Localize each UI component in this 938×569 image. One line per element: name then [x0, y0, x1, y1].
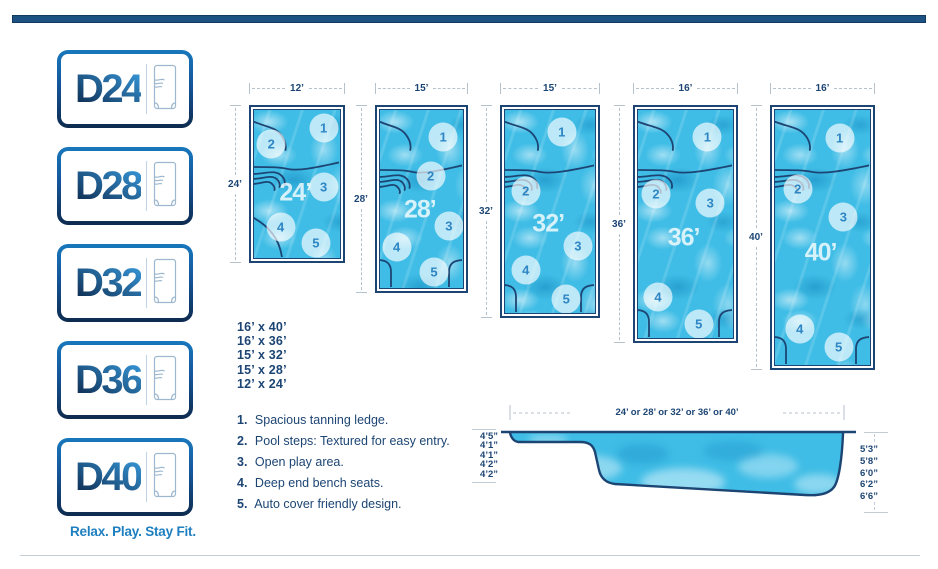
dim-tick [614, 105, 625, 106]
feature-text: Spacious tanning ledge. [251, 413, 388, 427]
dim-line [697, 88, 735, 89]
dim-tick [230, 105, 241, 106]
width-dimension: 12’ [249, 81, 345, 95]
dim-tick [633, 83, 634, 94]
feature-number: 5. [237, 497, 247, 511]
badge-divider [146, 161, 147, 211]
feature-item: 3. Open play area. [237, 452, 450, 473]
mini-pool-icon [153, 452, 177, 498]
dim-line [309, 88, 342, 89]
size-item: 12’ x 24’ [237, 377, 287, 391]
length-dimension: 24’ [220, 105, 250, 263]
pool-water-area: 32’12345 [504, 109, 596, 314]
badge-divider [146, 64, 147, 114]
size-item: 16’ x 40’ [237, 320, 287, 334]
pool-size-label: 40’ [805, 238, 837, 267]
length-dimension: 36’ [604, 105, 634, 343]
deep-depth-value: 5’8” [860, 456, 896, 468]
dim-line [235, 108, 236, 175]
dim-tick [481, 105, 492, 106]
model-badge-inner: D32 [61, 248, 189, 318]
feature-item: 1. Spacious tanning ledge. [237, 410, 450, 431]
shallow-depth-labels: 4’5”4’1”4’1”4’2”4’2” [468, 432, 498, 479]
feature-marker-3: 3 [696, 189, 725, 218]
size-item: 15’ x 28’ [237, 363, 287, 377]
pool-diagram-d32: 32’12345 [500, 105, 600, 318]
length-dimension-label: 32’ [479, 204, 493, 219]
pool-size-label: 28’ [404, 195, 436, 224]
model-label: D28 [75, 166, 141, 206]
dim-line [834, 88, 872, 89]
dim-tick [737, 83, 738, 94]
dim-line [756, 108, 757, 228]
pool-size-label: 24’ [279, 178, 311, 207]
feature-marker-1: 1 [309, 113, 338, 142]
pool-water-area: 40’12345 [774, 109, 871, 366]
sizes-list: 16’ x 40’16’ x 36’15’ x 32’15’ x 28’12’ … [237, 320, 287, 391]
footer-divider [20, 555, 920, 556]
model-badge-d32[interactable]: D32 [57, 244, 193, 322]
badge-divider [146, 355, 147, 405]
pool-water-area: 24’12345 [253, 109, 341, 259]
dim-tick [356, 292, 367, 293]
feature-text: Open play area. [251, 455, 343, 469]
mini-pool-icon [153, 161, 177, 207]
width-dimension: 15’ [375, 81, 468, 95]
pool-icon [153, 258, 177, 309]
dim-line [378, 88, 410, 89]
tagline: Relax. Play. Stay Fit. [70, 524, 196, 539]
width-dimension: 16’ [633, 81, 738, 95]
dim-tick [467, 83, 468, 94]
dim-tick [874, 83, 875, 94]
feature-marker-3: 3 [309, 172, 338, 201]
top-accent-bar [12, 15, 926, 23]
width-dimension-label: 12’ [287, 83, 307, 94]
feature-marker-4: 4 [382, 233, 411, 262]
depth-tick [864, 432, 888, 433]
depth-tick [864, 512, 888, 513]
dim-tick [751, 105, 762, 106]
model-badge-inner: D24 [61, 54, 189, 124]
pool-water-area: 36’12345 [637, 109, 734, 339]
dim-line [252, 88, 285, 89]
pool-diagram-d36: 36’12345 [633, 105, 738, 343]
feature-item: 4. Deep end bench seats. [237, 473, 450, 494]
deep-depth-value: 6’2” [860, 479, 896, 491]
dim-tick [599, 83, 600, 94]
feature-text: Auto cover friendly design. [251, 497, 401, 511]
model-badge-inner: D36 [61, 345, 189, 415]
dim-tick [751, 369, 762, 370]
model-label: D36 [75, 360, 141, 400]
dim-line [756, 247, 757, 367]
width-dimension: 15’ [500, 81, 600, 95]
dim-line [636, 88, 674, 89]
model-badge-d24[interactable]: D24 [57, 50, 193, 128]
dim-line [433, 88, 465, 89]
badge-divider [146, 258, 147, 308]
model-label: D32 [75, 263, 141, 303]
pool-size-label: 32’ [532, 209, 564, 238]
feature-marker-3: 3 [563, 232, 592, 261]
dim-tick [344, 83, 345, 94]
model-badge-inner: D40 [61, 442, 189, 512]
feature-marker-2: 2 [257, 130, 286, 159]
length-dimension: 28’ [346, 105, 376, 293]
pool-diagram-d40: 40’12345 [770, 105, 875, 370]
width-dimension: 16’ [770, 81, 875, 95]
pool-icon [153, 161, 177, 212]
feature-text: Deep end bench seats. [251, 476, 383, 490]
model-badge-d28[interactable]: D28 [57, 147, 193, 225]
dim-tick [614, 342, 625, 343]
feature-list: 1. Spacious tanning ledge.2. Pool steps:… [237, 410, 450, 515]
width-dimension-label: 15’ [412, 83, 432, 94]
feature-number: 2. [237, 434, 247, 448]
deep-depth-value: 6’0” [860, 468, 896, 480]
feature-marker-5: 5 [684, 310, 713, 339]
length-dimension: 32’ [471, 105, 501, 318]
depth-tick [472, 429, 496, 430]
profile-length-label: 24’ or 28’ or 32’ or 36’ or 40’ [572, 407, 782, 418]
feature-marker-5: 5 [552, 284, 581, 313]
length-dimension-label: 40’ [749, 230, 763, 245]
feature-marker-4: 4 [785, 315, 814, 344]
dim-line [619, 234, 620, 341]
pool-icon [153, 64, 177, 115]
pool-diagram-d28: 28’12345 [375, 105, 468, 293]
dim-tick [356, 105, 367, 106]
dim-line [486, 221, 487, 315]
feature-marker-1: 1 [825, 124, 854, 153]
feature-marker-5: 5 [824, 333, 853, 362]
feature-marker-4: 4 [511, 256, 540, 285]
width-dimension-label: 16’ [676, 83, 696, 94]
dim-line [486, 108, 487, 202]
model-badge-d36[interactable]: D36 [57, 341, 193, 419]
dim-line [361, 209, 362, 291]
depth-profile: 24’ or 28’ or 32’ or 36’ or 40’ 4’5”4’1”… [468, 396, 928, 528]
feature-marker-1: 1 [429, 122, 458, 151]
badge-divider [146, 452, 147, 502]
length-dimension-label: 24’ [228, 177, 242, 192]
model-badge-d40[interactable]: D40 [57, 438, 193, 516]
pool-diagram-d24: 24’12345 [249, 105, 345, 263]
feature-item: 2. Pool steps: Textured for easy entry. [237, 431, 450, 452]
dim-line [773, 88, 811, 89]
dim-tick [500, 83, 501, 94]
feature-marker-2: 2 [416, 161, 445, 190]
deep-depth-value: 5’3” [860, 444, 896, 456]
length-dimension-label: 28’ [354, 192, 368, 207]
pool-size-label: 36’ [668, 223, 700, 252]
feature-marker-5: 5 [301, 229, 330, 258]
length-dimension: 40’ [741, 105, 771, 370]
feature-marker-2: 2 [642, 180, 671, 209]
feature-marker-3: 3 [434, 211, 463, 240]
dim-line [235, 194, 236, 261]
feature-number: 4. [237, 476, 247, 490]
feature-marker-4: 4 [266, 212, 295, 241]
width-dimension-label: 15’ [540, 83, 560, 94]
feature-number: 3. [237, 455, 247, 469]
dim-tick [770, 83, 771, 94]
dim-tick [230, 262, 241, 263]
size-item: 16’ x 36’ [237, 334, 287, 348]
feature-item: 5. Auto cover friendly design. [237, 494, 450, 515]
deep-depth-value: 6’6” [860, 491, 896, 503]
feature-marker-3: 3 [829, 203, 858, 232]
dim-line [361, 108, 362, 190]
dim-tick [375, 83, 376, 94]
feature-number: 1. [237, 413, 247, 427]
shallow-depth-value: 4’2” [468, 470, 498, 479]
deep-depth-labels: 5’3”5’8”6’0”6’2”6’6” [860, 444, 896, 503]
feature-text: Pool steps: Textured for easy entry. [251, 434, 449, 448]
feature-marker-2: 2 [783, 175, 812, 204]
mini-pool-icon [153, 258, 177, 304]
depth-tick [472, 482, 496, 483]
feature-marker-1: 1 [693, 123, 722, 152]
width-dimension-label: 16’ [813, 83, 833, 94]
size-item: 15’ x 32’ [237, 348, 287, 362]
length-dimension-label: 36’ [612, 217, 626, 232]
model-label: D24 [75, 69, 141, 109]
dim-tick [249, 83, 250, 94]
pool-water-area: 28’12345 [379, 109, 464, 289]
depth-dash [874, 502, 875, 510]
mini-pool-icon [153, 355, 177, 401]
feature-marker-1: 1 [547, 118, 576, 147]
dim-line [503, 88, 538, 89]
mini-pool-icon [153, 64, 177, 110]
pool-icon [153, 452, 177, 503]
dim-tick [481, 317, 492, 318]
model-badge-inner: D28 [61, 151, 189, 221]
feature-marker-4: 4 [643, 282, 672, 311]
feature-marker-2: 2 [511, 177, 540, 206]
dim-line [619, 108, 620, 215]
pool-spec-sheet: D24D28D32D36D40 Relax. Play. Stay Fit. 2… [0, 0, 938, 569]
feature-marker-5: 5 [419, 257, 448, 286]
depth-dash [874, 434, 875, 442]
dim-line [562, 88, 597, 89]
model-label: D40 [75, 457, 141, 497]
pool-icon [153, 355, 177, 406]
